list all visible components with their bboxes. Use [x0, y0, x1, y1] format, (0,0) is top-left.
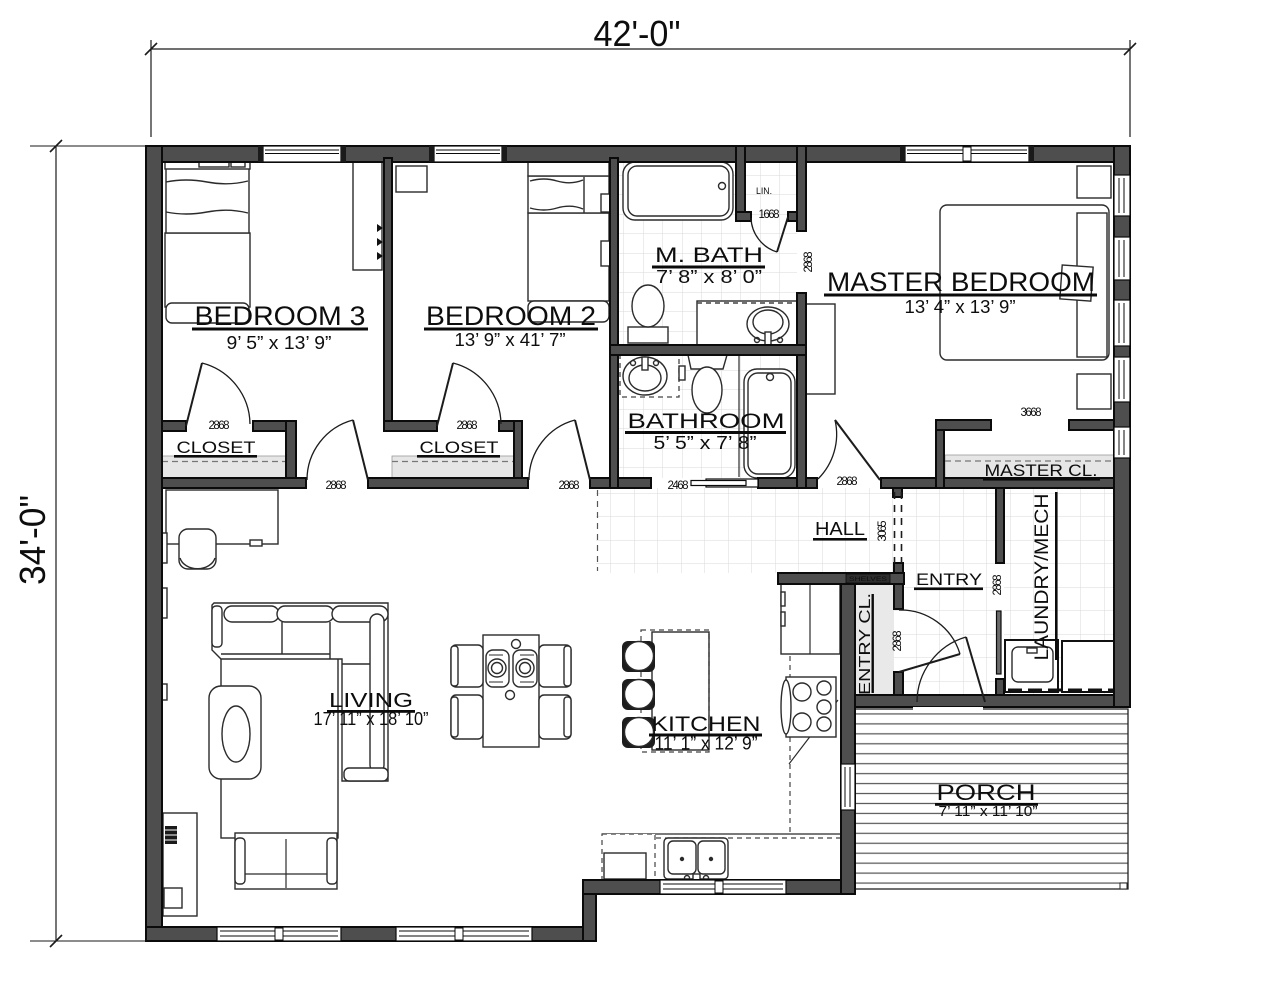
svg-text:LAUNDRY/MECH: LAUNDRY/MECH: [1032, 494, 1053, 661]
svg-text:MASTER CL.: MASTER CL.: [985, 461, 1098, 480]
svg-text:ENTRY: ENTRY: [916, 570, 982, 589]
svg-text:7’ 8” x 8’ 0”: 7’ 8” x 8’ 0”: [656, 267, 762, 287]
svg-text:2868: 2868: [559, 480, 580, 492]
svg-text:3668: 3668: [1021, 407, 1042, 419]
svg-text:BEDROOM 2: BEDROOM 2: [426, 301, 596, 331]
svg-text:34'-0": 34'-0": [12, 495, 53, 585]
svg-text:2868: 2868: [803, 252, 815, 273]
svg-text:2868: 2868: [992, 575, 1004, 596]
svg-text:7’ 11” x 11’ 10”: 7’ 11” x 11’ 10”: [939, 803, 1038, 820]
svg-text:PORCH: PORCH: [937, 780, 1036, 805]
svg-text:5’ 5” x 7’ 8”: 5’ 5” x 7’ 8”: [654, 433, 757, 453]
svg-text:2468: 2468: [668, 480, 689, 492]
svg-text:M. BATH: M. BATH: [655, 244, 763, 267]
svg-text:LIN.: LIN.: [756, 186, 772, 196]
svg-text:2868: 2868: [837, 476, 858, 488]
svg-text:9’ 5” x 13’ 9”: 9’ 5” x 13’ 9”: [227, 333, 332, 353]
svg-text:2868: 2868: [209, 420, 230, 432]
svg-text:13’ 9” x 41’ 7”: 13’ 9” x 41’ 7”: [455, 330, 566, 350]
svg-text:13’ 4” x 13’ 9”: 13’ 4” x 13’ 9”: [905, 297, 1016, 317]
svg-text:BATHROOM: BATHROOM: [628, 410, 785, 433]
svg-text:2868: 2868: [457, 420, 478, 432]
svg-text:HALL: HALL: [815, 519, 865, 539]
svg-text:1668: 1668: [759, 209, 780, 221]
svg-text:CLOSET: CLOSET: [420, 438, 499, 457]
svg-text:2868: 2868: [326, 480, 347, 492]
svg-text:11’ 1” x 12’ 9”: 11’ 1” x 12’ 9”: [655, 734, 758, 754]
svg-text:2868: 2868: [892, 631, 904, 652]
svg-text:ENTRY CL.: ENTRY CL.: [857, 593, 874, 695]
svg-text:17’ 11” x 18’ 10”: 17’ 11” x 18’ 10”: [314, 709, 429, 729]
svg-text:BEDROOM 3: BEDROOM 3: [195, 301, 366, 331]
svg-text:CLOSET: CLOSET: [177, 438, 256, 457]
svg-text:SHELVES: SHELVES: [849, 576, 888, 583]
svg-text:42'-0": 42'-0": [594, 13, 681, 54]
svg-text:3065: 3065: [877, 521, 889, 542]
svg-text:MASTER BEDROOM: MASTER BEDROOM: [827, 267, 1095, 297]
